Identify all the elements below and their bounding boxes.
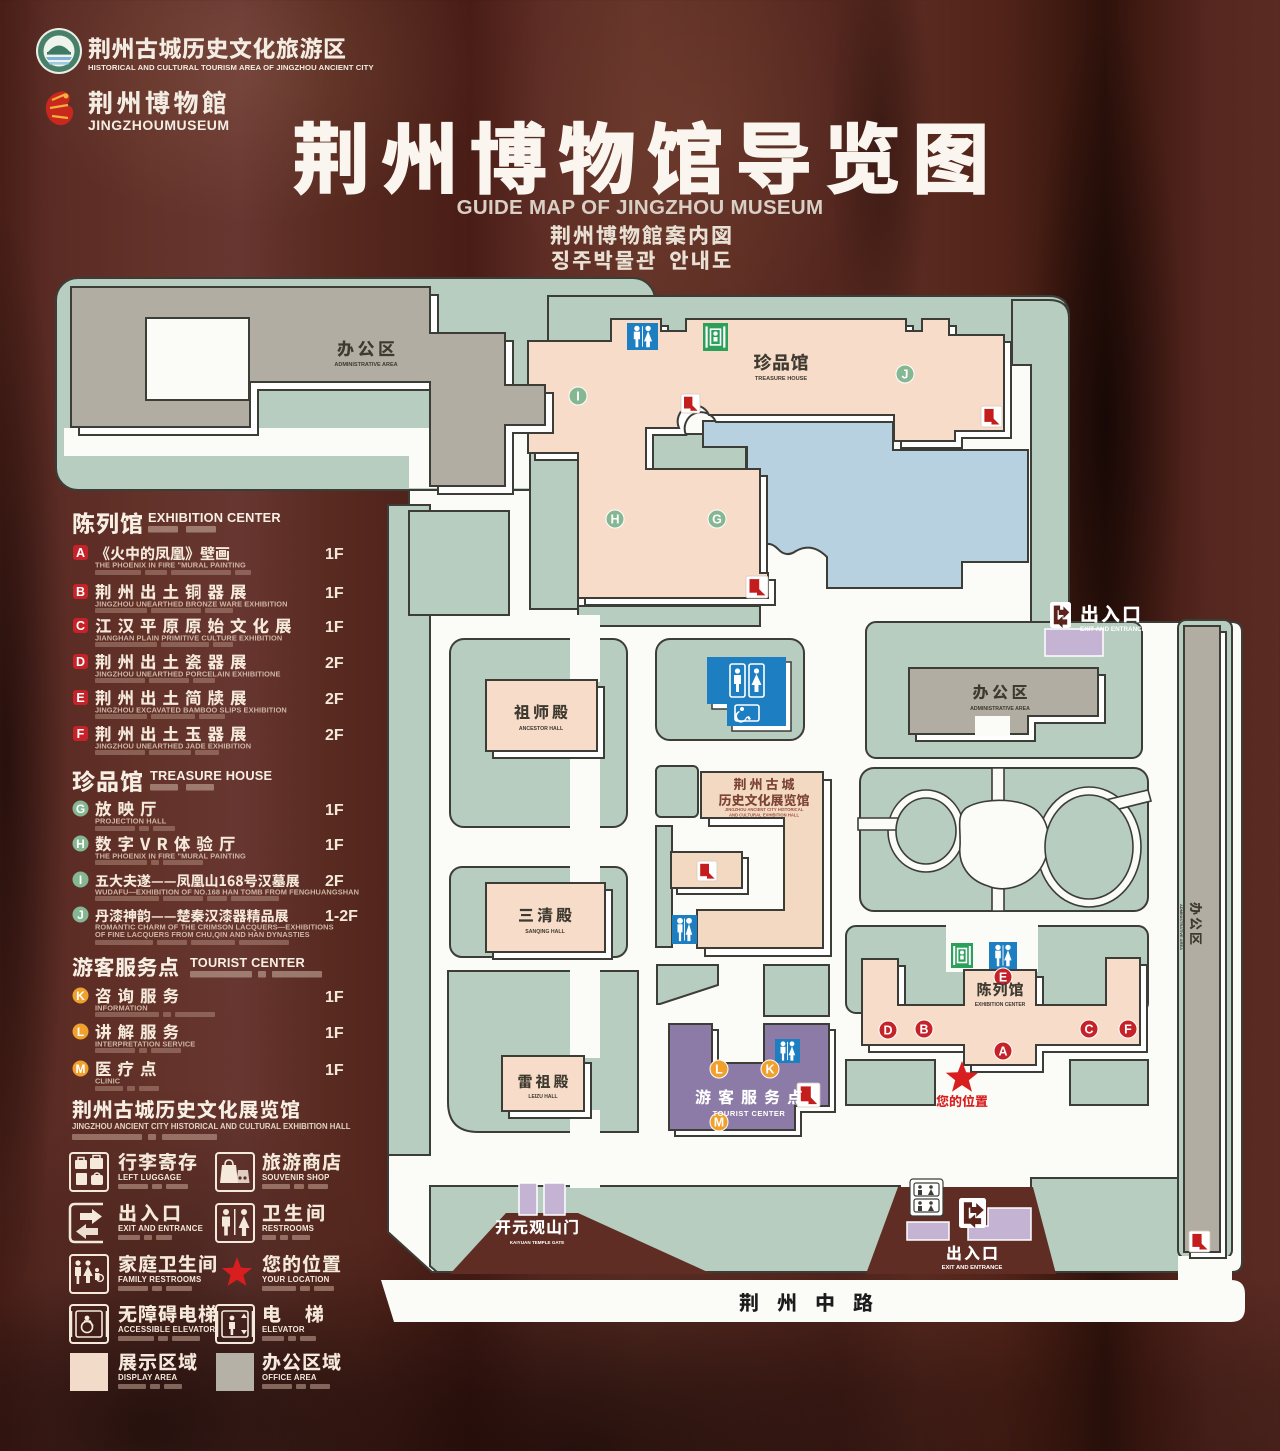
- svg-text:ADMINISTRATIVE AREA: ADMINISTRATIVE AREA: [1179, 904, 1184, 950]
- svg-text:2F: 2F: [325, 727, 344, 744]
- svg-text:E: E: [76, 691, 84, 705]
- svg-text:A: A: [76, 546, 85, 560]
- svg-text:LEIZU HALL: LEIZU HALL: [528, 1094, 557, 1100]
- svg-text:K: K: [765, 1063, 774, 1077]
- svg-text:HISTORICAL AND CULTURAL TOURIS: HISTORICAL AND CULTURAL TOURISM AREA OF …: [88, 63, 374, 72]
- svg-text:SOUVENIR SHOP: SOUVENIR SHOP: [262, 1173, 330, 1182]
- svg-text:J: J: [77, 908, 84, 922]
- svg-text:I: I: [79, 873, 82, 887]
- svg-text:B: B: [76, 585, 85, 599]
- svg-text:JINGZHOU EXCAVATED BAMBOO SLIP: JINGZHOU EXCAVATED BAMBOO SLIPS EXHIBITI…: [95, 706, 287, 715]
- svg-text:KAIYUAN TEMPLE GATE: KAIYUAN TEMPLE GATE: [510, 1240, 565, 1245]
- svg-text:1F: 1F: [325, 1025, 344, 1042]
- svg-text:CLINIC: CLINIC: [95, 1077, 121, 1086]
- svg-text:TOURIST CENTER: TOURIST CENTER: [190, 955, 305, 970]
- svg-text:EXIT AND ENTRANCE: EXIT AND ENTRANCE: [942, 1265, 1003, 1271]
- svg-text:1F: 1F: [325, 546, 344, 563]
- svg-text:JIANGHAN PLAIN PRIMITIVE CULTU: JIANGHAN PLAIN PRIMITIVE CULTURE EXHIBIT…: [95, 634, 282, 643]
- svg-text:INTERPRETATION SERVICE: INTERPRETATION SERVICE: [95, 1040, 195, 1049]
- svg-text:D: D: [76, 655, 85, 669]
- svg-text:JINGZHOU UNEARTHED PORCELAIN E: JINGZHOU UNEARTHED PORCELAIN EXHIBITIONE: [95, 670, 281, 679]
- svg-text:I: I: [576, 390, 579, 404]
- svg-text:J: J: [902, 368, 909, 382]
- svg-text:1F: 1F: [325, 802, 344, 819]
- svg-text:H: H: [610, 513, 619, 527]
- svg-text:2F: 2F: [325, 873, 344, 890]
- svg-text:C: C: [1084, 1023, 1093, 1037]
- svg-text:RESTROOMS: RESTROOMS: [262, 1224, 314, 1233]
- svg-text:GUIDE MAP OF JINGZHOU MUSEUM: GUIDE MAP OF JINGZHOU MUSEUM: [457, 196, 824, 219]
- svg-text:1-2F: 1-2F: [325, 908, 358, 925]
- svg-text:A: A: [998, 1045, 1007, 1059]
- svg-text:D: D: [883, 1024, 892, 1038]
- svg-text:AND CULTURAL EXHIBITION HALL: AND CULTURAL EXHIBITION HALL: [729, 813, 800, 818]
- svg-text:1F: 1F: [325, 619, 344, 636]
- svg-text:SANQING HALL: SANQING HALL: [525, 929, 565, 935]
- svg-text:JINGZHOUMUSEUM: JINGZHOUMUSEUM: [88, 117, 230, 133]
- svg-text:ANCESTOR HALL: ANCESTOR HALL: [519, 726, 564, 732]
- svg-text:EXIT AND ENTRANCE: EXIT AND ENTRANCE: [1080, 626, 1146, 633]
- svg-text:F: F: [77, 727, 85, 741]
- svg-text:1F: 1F: [325, 585, 344, 602]
- svg-text:TREASURE HOUSE: TREASURE HOUSE: [150, 768, 273, 783]
- svg-text:2F: 2F: [325, 691, 344, 708]
- svg-text:M: M: [76, 1062, 86, 1076]
- svg-text:JINGZHOU UNEARTHED JADE EXHIBI: JINGZHOU UNEARTHED JADE EXHIBITION: [95, 742, 251, 751]
- svg-text:TREASURE HOUSE: TREASURE HOUSE: [755, 376, 807, 382]
- svg-text:LEFT LUGGAGE: LEFT LUGGAGE: [118, 1173, 181, 1182]
- svg-text:OFFICE AREA: OFFICE AREA: [262, 1373, 317, 1382]
- svg-text:B: B: [919, 1023, 928, 1037]
- svg-text:C: C: [76, 619, 85, 633]
- svg-text:F: F: [1124, 1023, 1132, 1037]
- svg-text:L: L: [715, 1063, 723, 1077]
- svg-text:1F: 1F: [325, 1062, 344, 1079]
- svg-text:1F: 1F: [325, 837, 344, 854]
- svg-text:G: G: [76, 802, 85, 816]
- svg-text:EXIT AND ENTRANCE: EXIT AND ENTRANCE: [118, 1224, 203, 1233]
- svg-text:G: G: [712, 513, 722, 527]
- svg-text:EXHIBITION CENTER: EXHIBITION CENTER: [148, 510, 281, 525]
- svg-text:K: K: [76, 989, 85, 1003]
- svg-text:DISPLAY AREA: DISPLAY AREA: [118, 1373, 177, 1382]
- svg-text:H: H: [76, 837, 85, 851]
- svg-text:2F: 2F: [325, 655, 344, 672]
- svg-text:1F: 1F: [325, 989, 344, 1006]
- svg-text:L: L: [77, 1025, 84, 1039]
- svg-text:WUDAFU—EXHIBITION OF NO.168 HA: WUDAFU—EXHIBITION OF NO.168 HAN TOMB FRO…: [95, 888, 359, 897]
- svg-text:JINGZHOU ANCIENT CITY HISTORIC: JINGZHOU ANCIENT CITY HISTORICAL AND CUL…: [72, 1122, 351, 1131]
- svg-text:PROJECTION HALL: PROJECTION HALL: [95, 817, 167, 826]
- svg-text:EXHIBITION CENTER: EXHIBITION CENTER: [975, 1002, 1026, 1008]
- svg-text:FAMILY RESTROOMS: FAMILY RESTROOMS: [118, 1275, 201, 1284]
- svg-text:ELEVATOR: ELEVATOR: [262, 1325, 305, 1334]
- svg-text:TOURIST CENTER: TOURIST CENTER: [713, 1109, 786, 1118]
- svg-text:YOUR LOCATION: YOUR LOCATION: [262, 1275, 330, 1284]
- svg-text:OF FINE LACQUERS FROM CHU,QIN: OF FINE LACQUERS FROM CHU,QIN AND HAN DY…: [95, 930, 310, 939]
- svg-text:ADMINISTRATIVE AREA: ADMINISTRATIVE AREA: [334, 362, 397, 368]
- svg-text:JINGZHOU UNEARTHED BRONZE WARE: JINGZHOU UNEARTHED BRONZE WARE EXHIBITIO…: [95, 600, 288, 609]
- svg-text:ACCESSIBLE ELEVATOR: ACCESSIBLE ELEVATOR: [118, 1325, 216, 1334]
- svg-text:THE PHOENIX IN FIRE "MURAL PAI: THE PHOENIX IN FIRE "MURAL PAINTING: [95, 561, 246, 570]
- svg-text:JINGZHOU ANCIENT CITY HISTORIC: JINGZHOU ANCIENT CITY HISTORICAL: [725, 807, 804, 812]
- svg-text:INFORMATION: INFORMATION: [95, 1004, 148, 1013]
- svg-text:THE PHOENIX IN FIRE "MURAL PAI: THE PHOENIX IN FIRE "MURAL PAINTING: [95, 852, 246, 861]
- svg-text:ADMINISTRATIVE AREA: ADMINISTRATIVE AREA: [970, 706, 1030, 712]
